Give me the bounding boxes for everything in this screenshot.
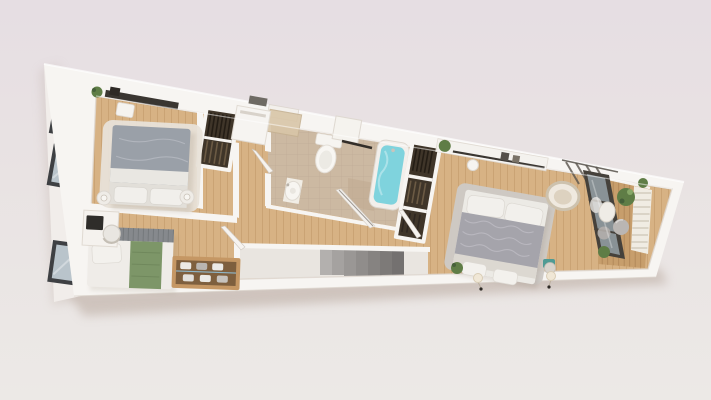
sconce-plug — [547, 285, 550, 288]
floorplan-render — [0, 0, 711, 400]
shelf-books — [500, 152, 509, 161]
plant-bedroom1-leaf — [92, 88, 96, 92]
shoes — [217, 275, 228, 282]
stair-tread — [356, 250, 368, 276]
pendant-lamp — [116, 102, 135, 118]
sconce-shade — [547, 272, 556, 281]
stair-tread — [344, 250, 356, 276]
desk-area — [82, 210, 121, 247]
wall-bathroom-left-lower — [265, 173, 271, 208]
bedside-plant-leaf — [452, 263, 456, 267]
bed-1-pillow-left — [114, 186, 148, 204]
shelf-books — [512, 155, 520, 163]
shoes — [196, 263, 207, 270]
stair-tread — [332, 249, 344, 275]
bed-1-pillow-right — [150, 188, 184, 206]
balcony-plant-corner — [638, 178, 648, 188]
plant-highlight — [627, 189, 633, 195]
shoes — [183, 274, 194, 281]
shoe-bench — [171, 256, 240, 290]
wall-art — [109, 87, 120, 97]
shoes — [200, 275, 211, 282]
stair-tread — [392, 251, 404, 276]
hall-cabinet — [231, 105, 270, 144]
sconce-shade — [474, 274, 483, 283]
monitor — [86, 215, 104, 230]
sconce-plug — [479, 287, 482, 290]
lamp-left — [101, 195, 107, 201]
balcony-plant-bottom — [598, 246, 610, 258]
stairs — [320, 249, 404, 276]
shoes — [180, 262, 191, 269]
white-cabinet — [231, 105, 270, 144]
stair-tread — [380, 251, 392, 276]
floorplan-canvas — [0, 0, 711, 400]
stair-tread — [368, 250, 380, 276]
lamp-right — [184, 194, 190, 200]
plant-shade — [620, 199, 625, 204]
master-bed — [451, 189, 552, 289]
bathroom-wall-cabinet — [332, 116, 362, 143]
bed-2-headboard-stripes — [113, 227, 174, 242]
shoes — [212, 263, 223, 270]
stair-tread — [320, 249, 332, 275]
sphere-lantern — [613, 219, 629, 235]
